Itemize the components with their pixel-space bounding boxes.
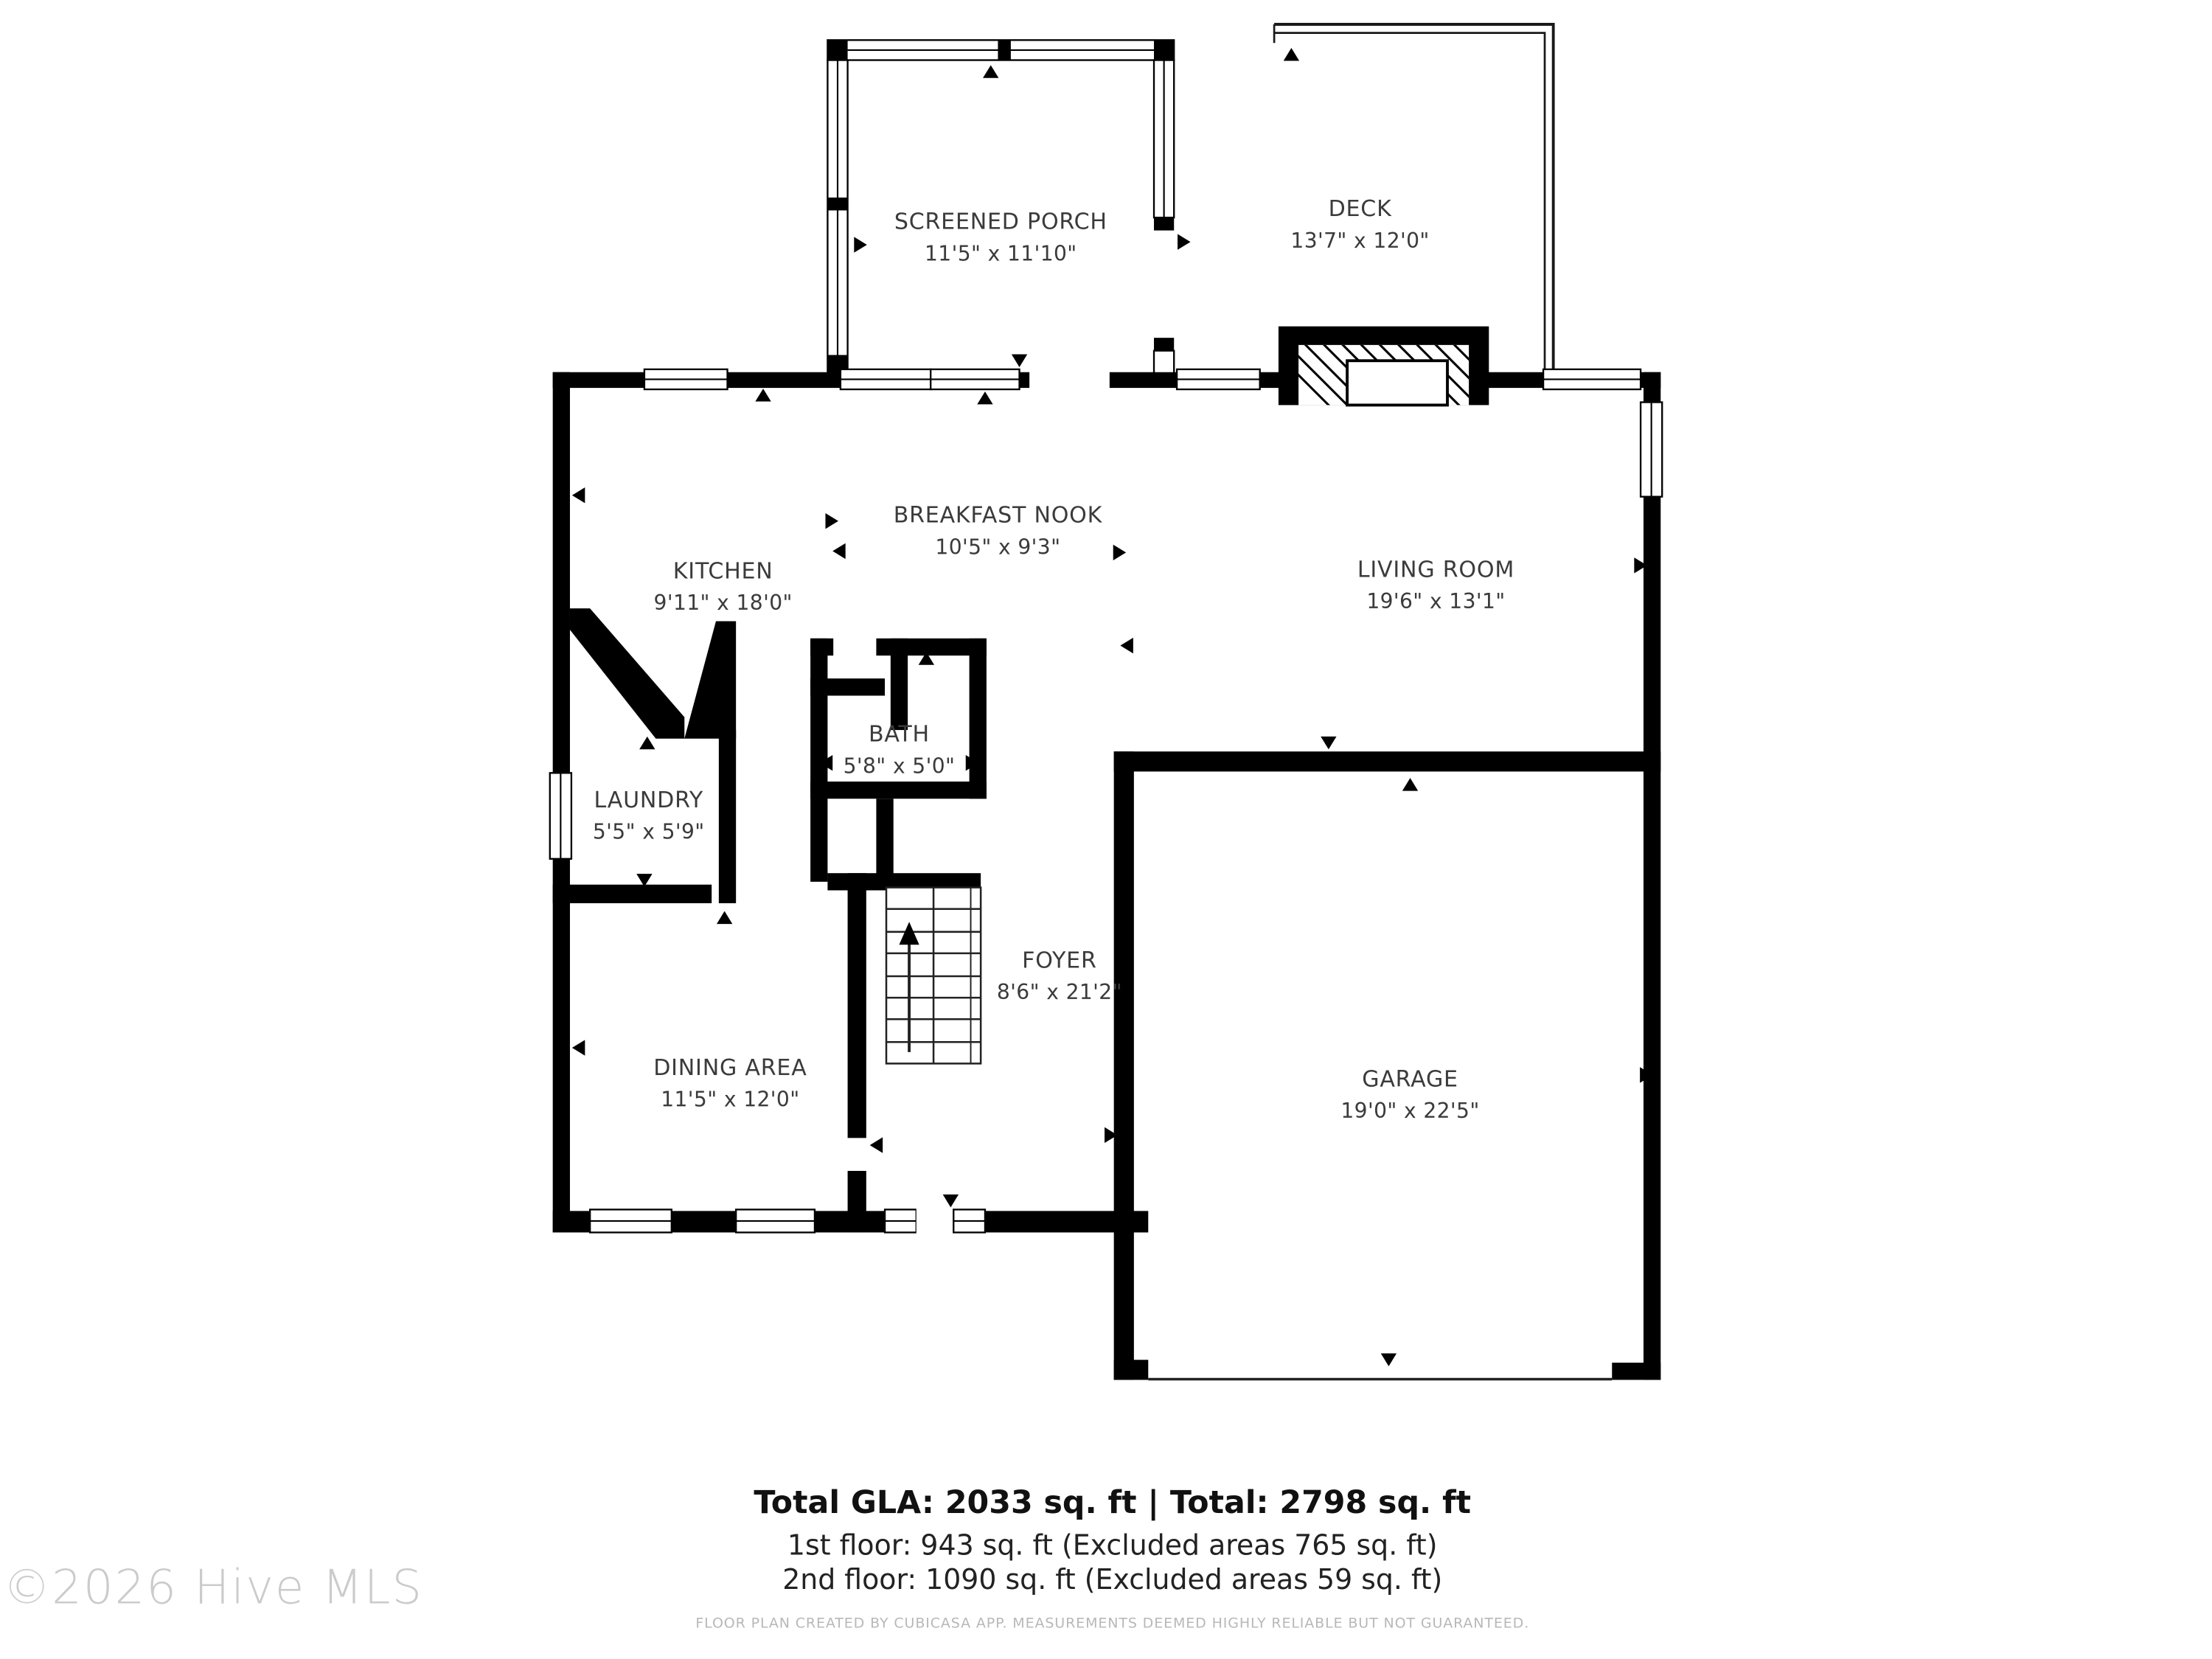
door-arrow-icon xyxy=(572,1040,585,1055)
room-label-breakfast-nook: BREAKFAST NOOK 10'5" x 9'3" xyxy=(894,503,1103,560)
svg-text:DINING AREA: DINING AREA xyxy=(653,1055,807,1081)
room-label-foyer: FOYER 8'6" x 21'2" xyxy=(997,947,1122,1004)
door-arrow-icon xyxy=(717,911,732,924)
room-label-living-room: LIVING ROOM 19'6" x 13'1" xyxy=(1357,557,1514,613)
first-floor-line: 1st floor: 943 sq. ft (Excluded areas 76… xyxy=(787,1528,1438,1561)
room-label-kitchen: KITCHEN 9'11" x 18'0" xyxy=(654,558,793,615)
door-arrow-icon xyxy=(854,237,866,252)
svg-text:5'5" x 5'9": 5'5" x 5'9" xyxy=(593,820,705,844)
floor-plan-canvas: SCREENED PORCH 11'5" x 11'10" DECK 13'7"… xyxy=(0,0,2212,1659)
screened-porch-walls xyxy=(827,40,1174,373)
door-opening xyxy=(1029,368,1110,392)
svg-text:13'7" x 12'0": 13'7" x 12'0" xyxy=(1290,229,1429,253)
svg-text:9'11" x 18'0": 9'11" x 18'0" xyxy=(654,591,793,615)
second-floor-line: 2nd floor: 1090 sq. ft (Excluded areas 5… xyxy=(782,1563,1442,1596)
door-arrow-icon xyxy=(1284,48,1299,60)
room-label-laundry: LAUNDRY 5'5" x 5'9" xyxy=(593,787,705,844)
svg-text:GARAGE: GARAGE xyxy=(1362,1066,1458,1092)
door-arrow-icon xyxy=(1402,778,1418,790)
door-arrow-icon xyxy=(977,392,992,404)
door-arrow-icon xyxy=(639,737,655,749)
door-arrow-icon xyxy=(1120,638,1133,653)
door-arrow-icon xyxy=(572,487,585,503)
svg-text:5'8" x 5'0": 5'8" x 5'0" xyxy=(844,754,956,778)
walls-layer xyxy=(553,372,1661,1380)
svg-text:8'6" x 21'2": 8'6" x 21'2" xyxy=(997,980,1122,1004)
svg-text:19'0" x 22'5": 19'0" x 22'5" xyxy=(1340,1099,1479,1123)
stairs xyxy=(886,888,981,1064)
svg-text:11'5" x 11'10": 11'5" x 11'10" xyxy=(925,241,1077,265)
svg-text:BATH: BATH xyxy=(869,722,930,748)
door-arrow-icon xyxy=(1012,354,1027,366)
front-door-opening xyxy=(917,1207,953,1236)
svg-text:LAUNDRY: LAUNDRY xyxy=(594,787,703,813)
disclaimer-footer: FLOOR PLAN CREATED BY CUBICASA APP. MEAS… xyxy=(695,1615,1529,1631)
svg-text:10'5" x 9'3": 10'5" x 9'3" xyxy=(935,535,1060,559)
total-area-line: Total GLA: 2033 sq. ft | Total: 2798 sq.… xyxy=(754,1484,1471,1521)
room-label-garage: GARAGE 19'0" x 22'5" xyxy=(1340,1066,1479,1123)
fireplace-icon xyxy=(1260,327,1525,415)
svg-text:SCREENED PORCH: SCREENED PORCH xyxy=(894,209,1107,235)
deck-walls xyxy=(1274,24,1554,372)
watermark: ©2026 Hive MLS xyxy=(3,1560,423,1615)
svg-text:11'5" x 12'0": 11'5" x 12'0" xyxy=(661,1088,799,1112)
door-arrow-icon xyxy=(1381,1354,1397,1366)
svg-text:KITCHEN: KITCHEN xyxy=(673,558,773,584)
svg-text:BREAKFAST NOOK: BREAKFAST NOOK xyxy=(894,503,1103,529)
door-arrow-icon xyxy=(1113,545,1126,560)
svg-text:LIVING ROOM: LIVING ROOM xyxy=(1357,557,1514,582)
room-label-bath: BATH 5'8" x 5'0" xyxy=(844,722,956,779)
door-arrow-icon xyxy=(1321,737,1336,749)
door-arrow-icon xyxy=(755,389,771,401)
door-arrow-icon xyxy=(825,513,838,529)
svg-text:19'6" x 13'1": 19'6" x 13'1" xyxy=(1366,589,1505,613)
door-arrow-icon xyxy=(943,1194,959,1207)
door-arrow-icon xyxy=(832,543,845,559)
svg-text:DECK: DECK xyxy=(1329,196,1392,222)
room-label-screened-porch: SCREENED PORCH 11'5" x 11'10" xyxy=(894,209,1107,266)
door-arrow-icon xyxy=(983,65,998,77)
room-label-deck: DECK 13'7" x 12'0" xyxy=(1290,196,1429,253)
door-arrow-icon xyxy=(870,1137,883,1152)
room-label-dining-area: DINING AREA 11'5" x 12'0" xyxy=(653,1055,807,1112)
svg-text:FOYER: FOYER xyxy=(1022,947,1097,973)
door-arrow-icon xyxy=(1178,234,1190,249)
